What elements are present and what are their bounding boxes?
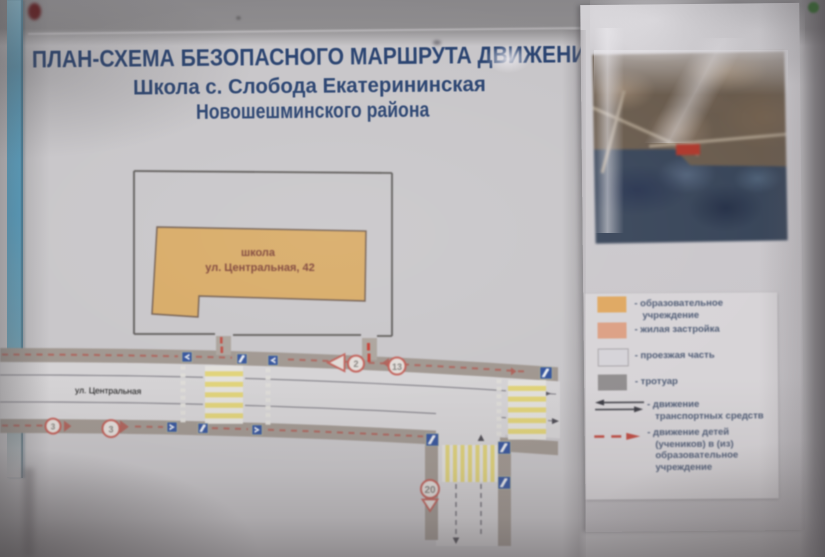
svg-text:ул. Центральная: ул. Центральная xyxy=(75,385,142,396)
svg-text:13: 13 xyxy=(392,362,402,372)
svg-text:20: 20 xyxy=(424,485,436,496)
svg-text:3: 3 xyxy=(51,423,56,432)
svg-text:школа: школа xyxy=(241,247,276,259)
svg-text:2: 2 xyxy=(353,359,358,369)
svg-text:3: 3 xyxy=(108,424,113,434)
svg-text:ул. Центральная, 42: ул. Центральная, 42 xyxy=(205,262,315,274)
